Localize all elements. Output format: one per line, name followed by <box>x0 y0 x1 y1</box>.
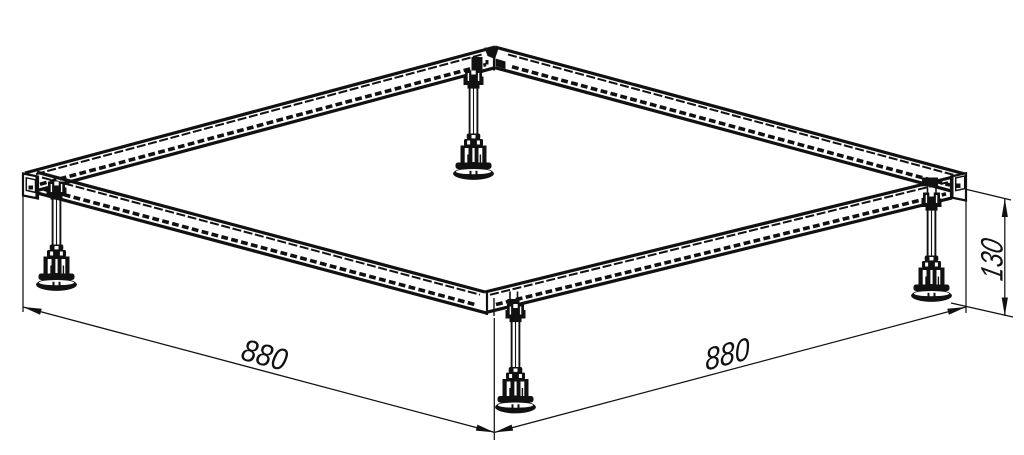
svg-text:130: 130 <box>975 235 1010 283</box>
svg-text:880: 880 <box>238 332 291 378</box>
svg-text:880: 880 <box>704 330 751 377</box>
